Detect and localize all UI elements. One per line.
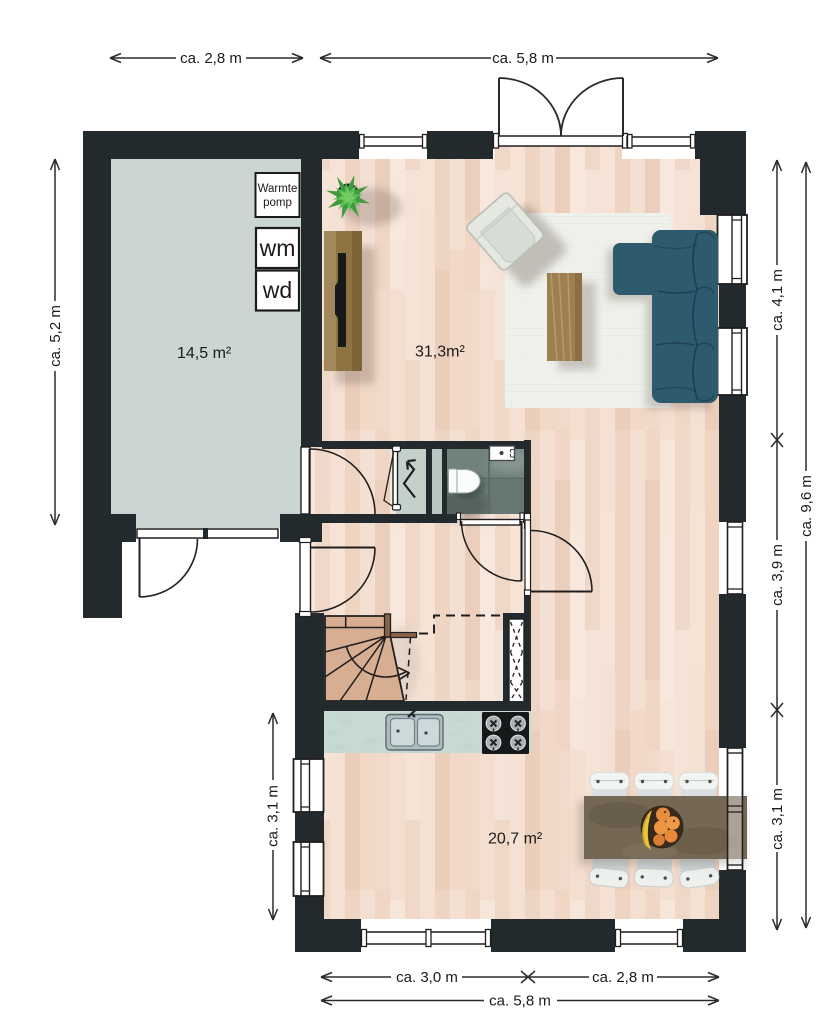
svg-text:pomp: pomp	[263, 197, 292, 209]
svg-text:wd: wd	[262, 277, 292, 303]
svg-text:ca. 3,0 m: ca. 3,0 m	[396, 969, 458, 986]
svg-text:31,3m²: 31,3m²	[415, 344, 465, 361]
svg-text:14,5 m²: 14,5 m²	[177, 345, 232, 362]
svg-text:Warmte: Warmte	[258, 183, 298, 195]
svg-text:ca. 3,1 m: ca. 3,1 m	[769, 788, 786, 850]
svg-text:ca. 3,9 m: ca. 3,9 m	[769, 544, 786, 606]
svg-text:20,7 m²: 20,7 m²	[488, 831, 543, 848]
svg-text:ca. 9,6 m: ca. 9,6 m	[798, 475, 815, 537]
svg-text:ca. 5,8 m: ca. 5,8 m	[489, 993, 551, 1010]
svg-text:ca. 3,1 m: ca. 3,1 m	[265, 785, 282, 847]
svg-text:ca. 2,8 m: ca. 2,8 m	[180, 50, 242, 67]
svg-text:ca. 2,8 m: ca. 2,8 m	[592, 969, 654, 986]
svg-text:ca. 4,1 m: ca. 4,1 m	[769, 269, 786, 331]
svg-text:ca. 5,2 m: ca. 5,2 m	[47, 305, 64, 367]
svg-text:wm: wm	[259, 235, 296, 261]
svg-text:ca. 5,8 m: ca. 5,8 m	[492, 50, 554, 67]
